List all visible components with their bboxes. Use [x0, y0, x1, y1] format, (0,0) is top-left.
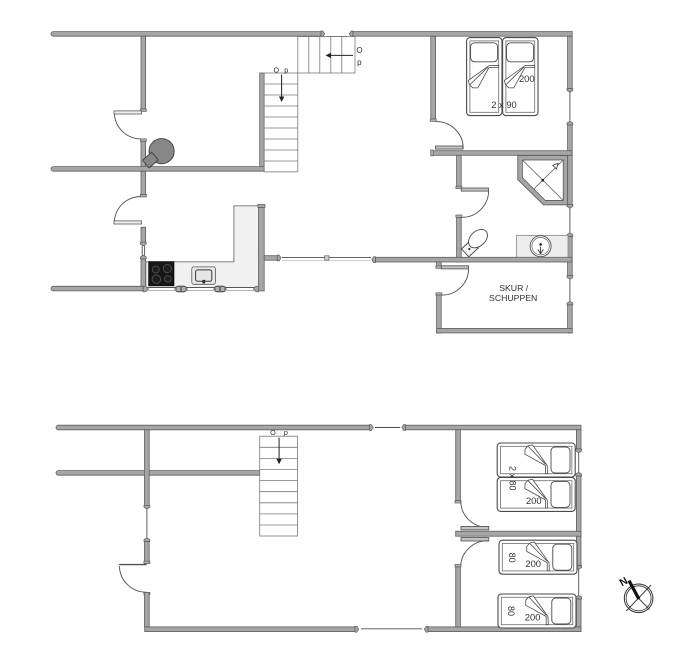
svg-text:SCHUPPEN: SCHUPPEN: [489, 293, 537, 303]
svg-text:O: O: [270, 428, 276, 437]
svg-text:200: 200: [519, 73, 535, 84]
svg-text:SKUR /: SKUR /: [499, 283, 529, 293]
svg-text:200: 200: [525, 611, 541, 622]
svg-text:O: O: [356, 46, 362, 55]
svg-text:O: O: [274, 65, 280, 74]
svg-text:p: p: [357, 58, 362, 67]
svg-text:80: 80: [507, 553, 517, 563]
svg-text:2 x 80: 2 x 80: [507, 466, 517, 491]
svg-text:200: 200: [525, 558, 541, 569]
svg-text:p: p: [284, 428, 288, 437]
svg-text:80: 80: [506, 606, 516, 616]
svg-text:2 x 90: 2 x 90: [491, 99, 517, 110]
svg-text:200: 200: [526, 495, 542, 506]
svg-text:p: p: [284, 65, 288, 74]
